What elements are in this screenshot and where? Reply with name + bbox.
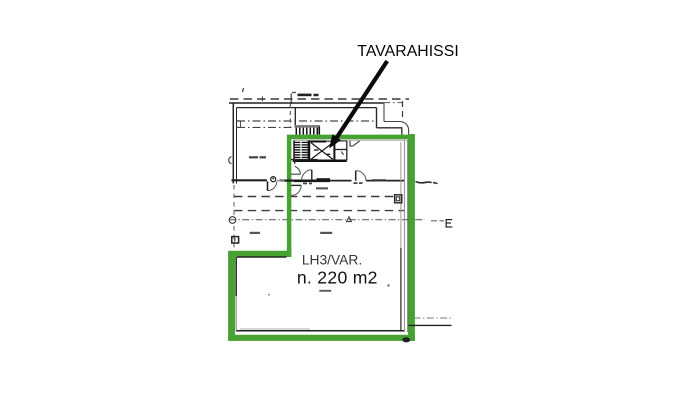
svg-text:n. 220 m2: n. 220 m2 <box>297 267 378 287</box>
svg-text:TAVARAHISSI: TAVARAHISSI <box>357 43 459 60</box>
svg-text:LH3/VAR.: LH3/VAR. <box>302 253 362 268</box>
